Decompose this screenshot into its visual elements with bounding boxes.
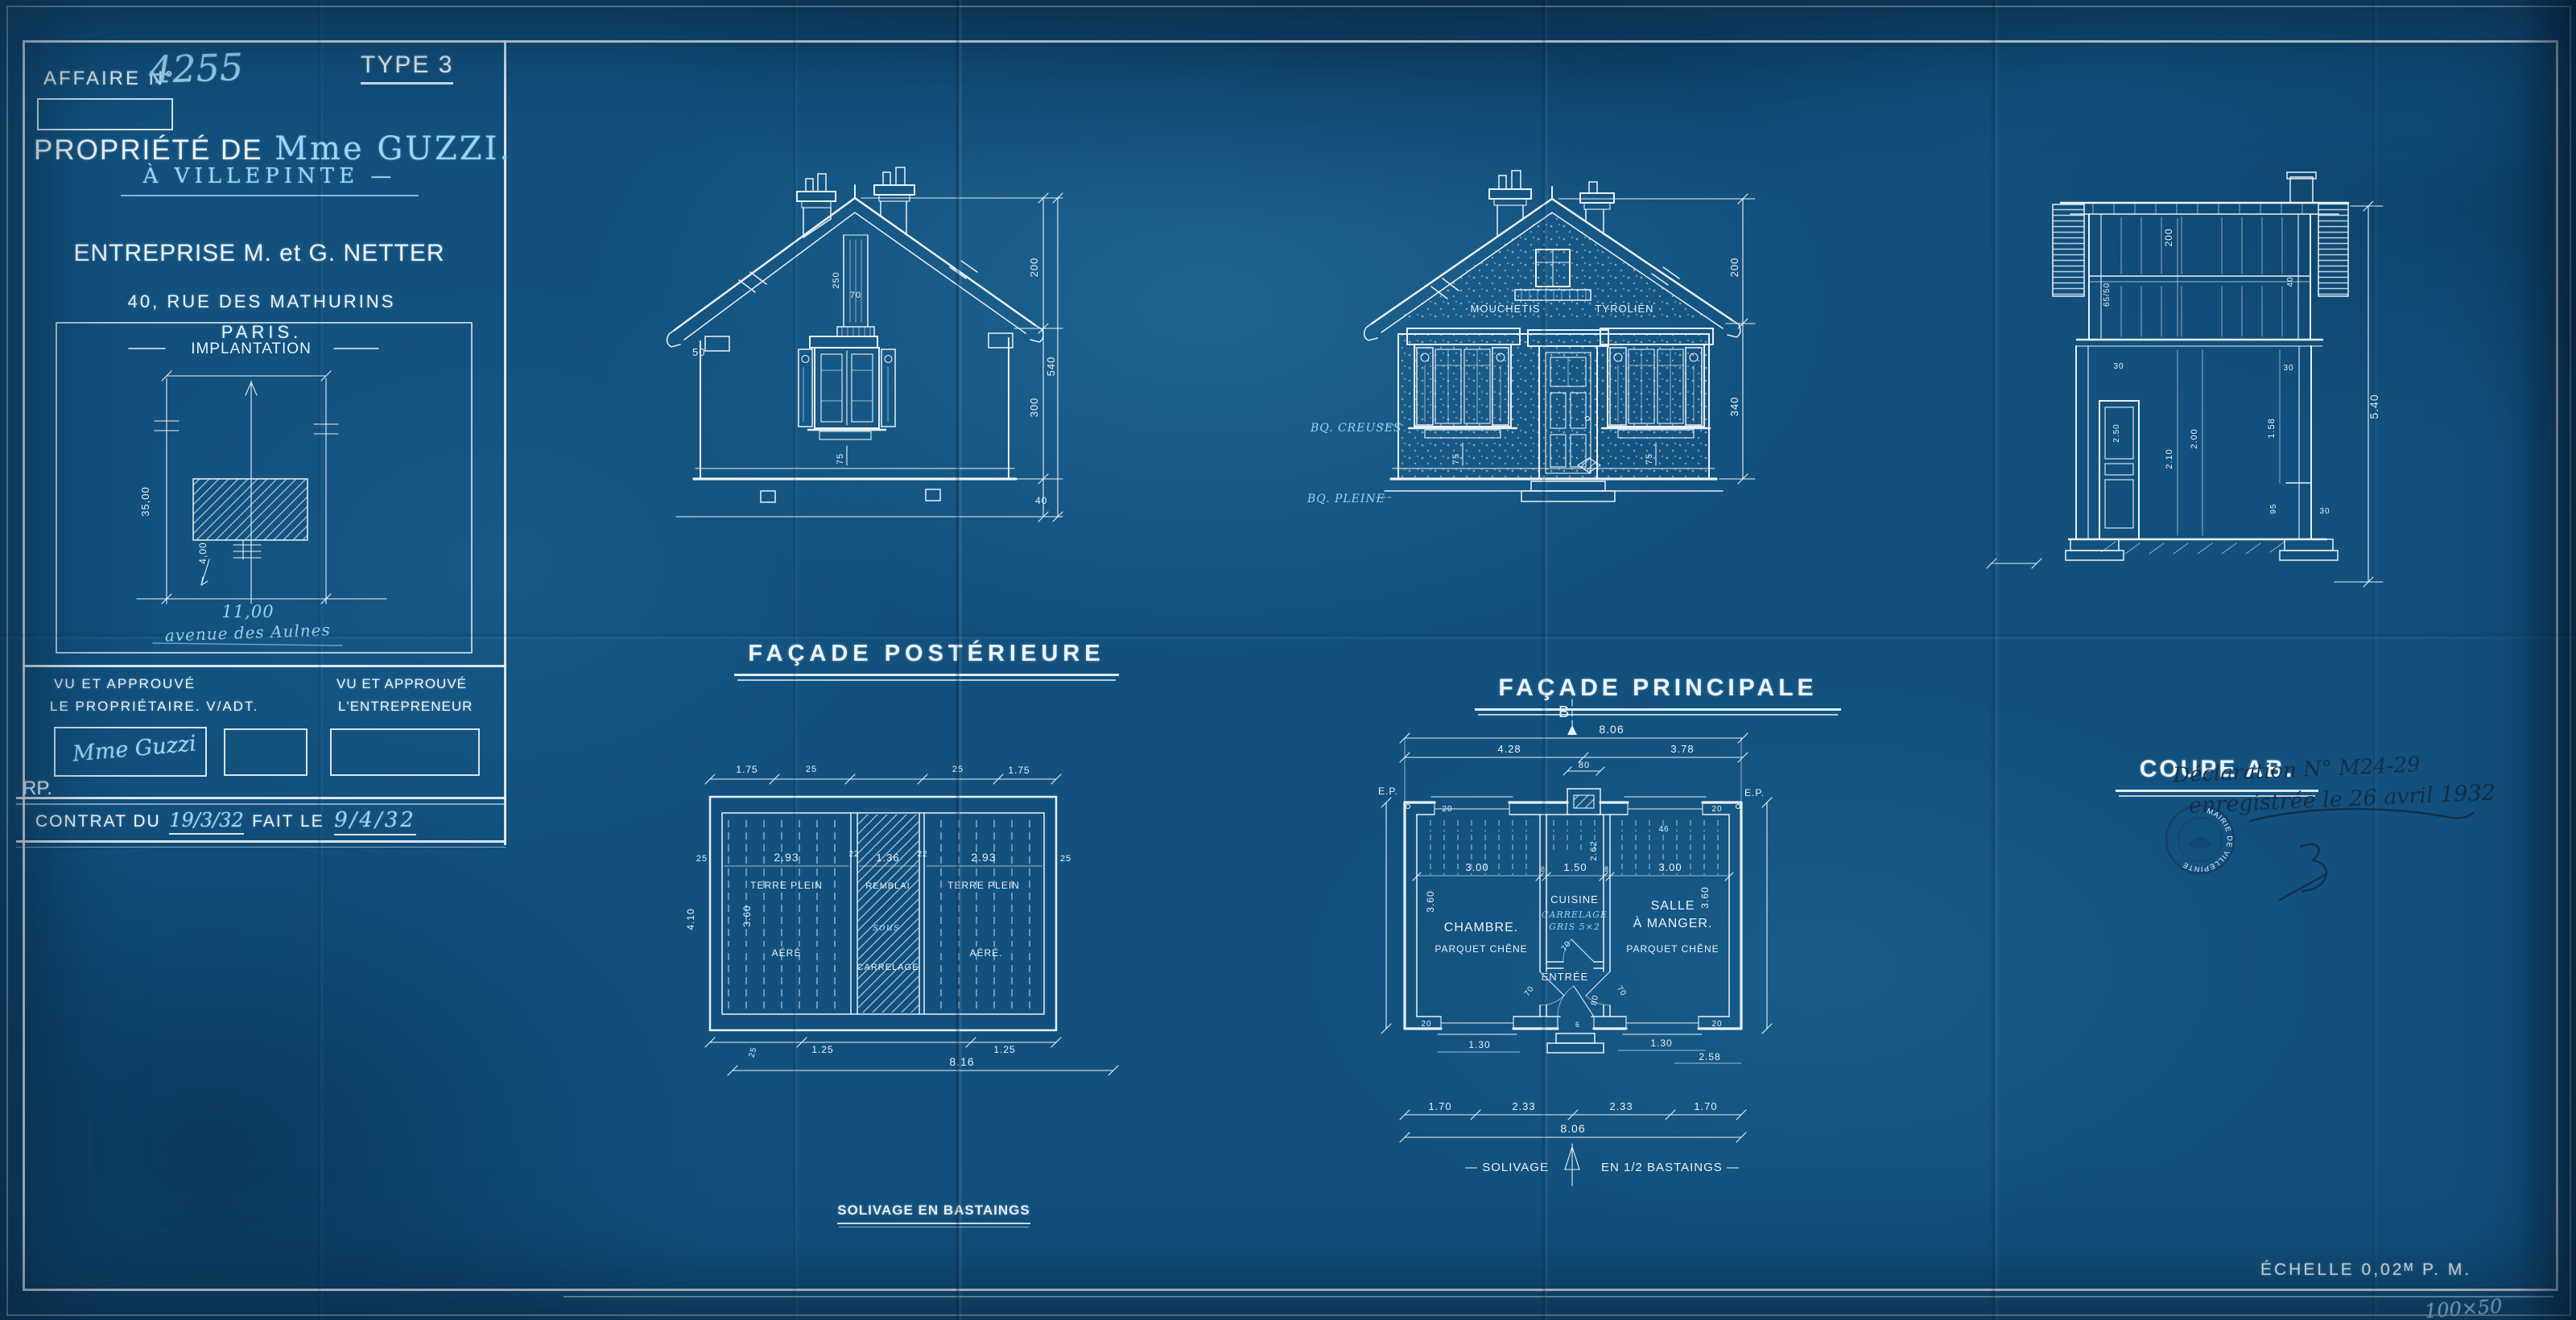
- affaire-number: 4255: [148, 45, 244, 92]
- dim-label: 200: [1028, 258, 1040, 278]
- contract-label2: FAIT LE: [252, 812, 324, 831]
- dim-label: 80: [1590, 994, 1600, 1006]
- room-floor: GRIS 5×2: [1549, 922, 1600, 932]
- room-floor: CARRELAGE: [1542, 910, 1608, 920]
- dim-label: 3.78: [1670, 743, 1694, 755]
- caption-solivage: SOLIVAGE EN BASTAINGS: [837, 1202, 1030, 1224]
- room-label: AÉRÉ.: [969, 947, 1002, 959]
- wall-material-label: BQ. CREUSES: [1310, 422, 1402, 435]
- dim-depth: 35,00: [139, 486, 151, 517]
- owner-approval-line2: LE PROPRIÉTAIRE. V/ADT.: [50, 699, 258, 715]
- dim-label: 70: [1523, 984, 1537, 998]
- dim-label: 2.33: [1512, 1100, 1535, 1112]
- dim-label: 2.00: [2190, 428, 2199, 448]
- plan-subtitle: EN 1/2 BASTAINGS —: [1601, 1161, 1740, 1174]
- dim-label: 30: [2283, 364, 2293, 373]
- fold-crease: [792, 0, 799, 1320]
- dim-label: 70: [1560, 939, 1574, 953]
- middle-signature-box: [224, 728, 308, 776]
- render-label: MOUCHETIS: [1471, 303, 1541, 315]
- company-line: ENTREPRISE M. et G. NETTER: [26, 240, 493, 267]
- implantation-title: IMPLANTATION: [191, 340, 312, 357]
- dim-label: 1.30: [1650, 1037, 1672, 1049]
- blueprint-sheet: AFFAIRE N° 4255 TYPE 3 PROPRIÉTÉ DE Mme …: [0, 0, 2576, 1320]
- dim-label: 95: [2269, 503, 2278, 514]
- dim-label: 65/50: [2103, 283, 2112, 307]
- dim-label: 25: [1060, 854, 1071, 864]
- size-note: 100×50: [2424, 1295, 2503, 1320]
- property-label: PROPRIÉTÉ DE: [34, 134, 263, 166]
- property-line: PROPRIÉTÉ DE Mme GUZZI.: [34, 130, 497, 167]
- room-floor: PARQUET CHÊNE: [1435, 943, 1527, 955]
- dim-label: 540: [1045, 357, 1057, 377]
- contract-label1: CONTRAT DU: [35, 812, 161, 831]
- dim-label: 30: [2113, 362, 2124, 371]
- dim-label: 75: [1645, 453, 1654, 464]
- dim-label: 70: [850, 291, 861, 300]
- address-line1: 40, RUE DES MATHURINS: [72, 291, 451, 312]
- fold-crease: [955, 0, 963, 1320]
- dim-label: 300: [1028, 398, 1040, 418]
- dim-label: 1.50: [1563, 861, 1587, 873]
- room-label: CARRELAGE: [857, 963, 919, 972]
- dim-label: 22: [848, 850, 859, 859]
- dim-label: 80: [1579, 761, 1590, 770]
- room-name: CUISINE: [1550, 893, 1599, 905]
- contract-date2: 9/4/32: [334, 808, 416, 835]
- caption-facade-principale: FAÇADE PRINCIPALE: [1475, 674, 1841, 711]
- dim-label: 25: [696, 854, 708, 864]
- dim-label: 340: [1728, 397, 1740, 417]
- mairie-stamp: MAIRIE DE VILLEPINTE: [2162, 802, 2238, 877]
- contractor-signature-box: [330, 728, 480, 776]
- scale-note: ÉCHELLE 0,02ᴹ P. M.: [2260, 1260, 2526, 1280]
- dim-label: 2.50: [2112, 423, 2121, 442]
- contract-date1: 19/3/32: [169, 809, 244, 835]
- dim-label: 3.00: [1465, 861, 1488, 873]
- dim-label: 2.62: [1589, 840, 1599, 860]
- wall-material-label: BQ. PLEINE: [1307, 493, 1385, 505]
- dim-label: 2.10: [2165, 448, 2174, 468]
- plan-subtitle: — SOLIVAGE: [1465, 1161, 1549, 1174]
- dim-label: 200: [1728, 258, 1740, 278]
- joist-foundation-plan: 1.75 25 25 1.75 25 25 4.10 3.60 2.93 22 …: [684, 708, 1183, 1159]
- dim-label: 2.33: [1609, 1100, 1633, 1112]
- dim-label: 1.70: [1694, 1100, 1717, 1112]
- room-name: CHAMBRE.: [1444, 921, 1518, 934]
- room-label: sous: [873, 922, 900, 934]
- dim-label: 200: [2163, 228, 2174, 246]
- dim-label: 6: [1575, 1021, 1580, 1029]
- dim-label: 75: [1451, 453, 1461, 464]
- section-coupe-ab: 200 65/50 40 30 30 2.50 2.10 2.00 1.58 9…: [1980, 145, 2544, 692]
- dim-label: 20: [1442, 805, 1452, 814]
- contractor-approval-line2: L'ENTREPRENEUR: [338, 699, 473, 715]
- ep-label: E.P.: [1744, 787, 1765, 798]
- contract-line: CONTRAT DU 19/3/32 FAIT LE 9/4/32: [35, 808, 416, 832]
- implantation-plan: IMPLANTATION 35,00 4,00 11,00 avenue des…: [32, 318, 515, 668]
- owner-name: Mme GUZZI.: [275, 130, 512, 167]
- fold-crease: [1541, 0, 1549, 1320]
- empty-reference-box: [37, 98, 173, 130]
- dim-label: 1.58: [2267, 418, 2277, 438]
- dim-label: 40: [2286, 276, 2295, 287]
- dim-label: 3.00: [1658, 861, 1682, 873]
- ep-label: E.P.: [1378, 786, 1398, 797]
- dim-label: 1.70: [1428, 1100, 1451, 1112]
- dim-label: 1.75: [1008, 765, 1030, 776]
- type-label: TYPE 3: [361, 52, 453, 85]
- dim-label: 46: [1658, 825, 1669, 834]
- dim-label: 2.58: [1699, 1051, 1720, 1062]
- dim-label: 25: [806, 765, 817, 774]
- room-name: SALLE: [1651, 899, 1695, 913]
- dim-label: 40: [1035, 495, 1047, 506]
- dim-label: 70: [1615, 984, 1629, 998]
- main-facade-elevation: MOUCHETIS TYROLIEN BQ. CREUSES BQ. PLEIN…: [1304, 145, 2013, 676]
- ink-signature: [2238, 797, 2479, 934]
- dim-label: 25: [748, 1046, 759, 1059]
- owner-approval-line1: VU ET APPROUVÉ: [54, 676, 196, 692]
- dim-label: 30: [2319, 507, 2330, 516]
- room-name: À MANGER.: [1633, 915, 1713, 930]
- dim-label: 3.60: [741, 905, 753, 926]
- dim-label: 1.75: [736, 764, 758, 775]
- dim-label: 2.93: [971, 851, 996, 864]
- dim-setback: 4,00: [197, 542, 208, 563]
- dim-label: 4.28: [1497, 743, 1521, 755]
- dim-label: 20: [1711, 1020, 1722, 1029]
- dim-label: 3.60: [1425, 890, 1436, 912]
- dim-label: 50: [692, 346, 705, 358]
- room-floor: PARQUET CHÊNE: [1626, 943, 1719, 955]
- location-line: À VILLEPINTE —: [121, 164, 419, 196]
- dim-label: 8: [1604, 865, 1609, 873]
- dim-label: 3.60: [1699, 886, 1711, 908]
- fold-crease: [317, 0, 324, 1320]
- fold-crease: [2372, 0, 2378, 1320]
- dim-label: 1.30: [1468, 1039, 1490, 1050]
- dim-label: 75: [836, 453, 845, 464]
- dim-label: 8.06: [1560, 1122, 1585, 1135]
- dim-label: 20: [1711, 805, 1722, 814]
- dim-label: 1.25: [993, 1044, 1015, 1055]
- room-label: REMBLAI: [865, 881, 910, 891]
- dim-label: 22: [917, 850, 927, 859]
- fold-crease-horizontal: [0, 633, 2576, 640]
- dim-label: 20: [1421, 1020, 1431, 1029]
- edge-shading: [2518, 0, 2576, 1320]
- dim-label: 250: [832, 271, 841, 288]
- fold-crease: [1990, 0, 2000, 1320]
- render-label: TYROLIEN: [1595, 303, 1653, 315]
- dim-label: 8.06: [1599, 723, 1624, 736]
- dim-frontage: 11,00: [221, 602, 274, 621]
- dim-label: 4.10: [685, 908, 696, 930]
- ground-floor-plan: B 8.06 4.28 3.78 80 E.P. E.P. 20 20 20 2…: [1328, 688, 1892, 1203]
- dim-label: 1.36: [876, 852, 899, 864]
- bottom-second-rule: [563, 1296, 2553, 1297]
- contractor-approval-line1: VU ET APPROUVÉ: [336, 676, 467, 692]
- rear-facade-elevation: 250 70 50 75 200 300 40 540: [660, 145, 1079, 644]
- dim-label: 1.25: [811, 1044, 833, 1055]
- room-label: TERRE PLEIN: [750, 880, 823, 891]
